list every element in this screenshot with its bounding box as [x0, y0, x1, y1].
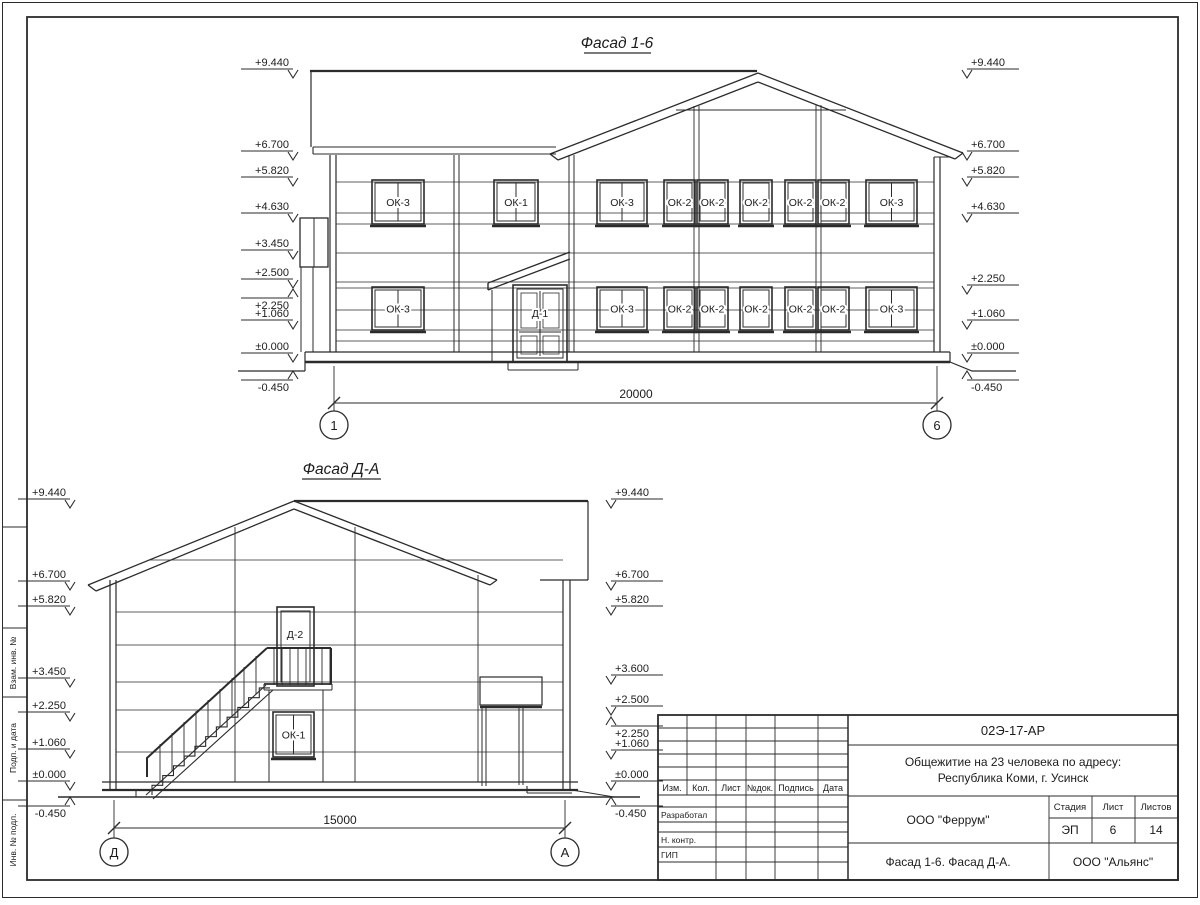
- window-label: ОК-2: [789, 197, 813, 209]
- window-label: ОК-1: [504, 197, 528, 209]
- col-list: Лист: [721, 783, 741, 793]
- window-label: ОК-2: [701, 304, 725, 316]
- stair-steps: [152, 688, 270, 795]
- elevation-value: ±0.000: [32, 769, 66, 781]
- axis-label: 6: [933, 418, 940, 433]
- window-label: ОК-2: [668, 304, 692, 316]
- elevation-value: -0.450: [258, 382, 289, 394]
- elevation-value: +3.450: [32, 666, 66, 678]
- window: ОК-2: [695, 180, 730, 226]
- elevation-value: +2.250: [32, 700, 66, 712]
- frame-side-label: Подп. и дата: [8, 723, 18, 773]
- dimension-text: 15000: [323, 813, 357, 827]
- row-razrabotal: Разработал: [661, 810, 707, 820]
- elevation-value: +4.630: [255, 201, 289, 213]
- elevation-value: +9.440: [971, 57, 1005, 69]
- stair-steps-layer: [152, 648, 330, 795]
- elevation-mark: ±0.000: [606, 769, 663, 790]
- elevation-value: +5.820: [32, 594, 66, 606]
- axis-label: А: [561, 845, 570, 860]
- sheet-value: 6: [1110, 823, 1117, 837]
- frame-side-label: Инв. № подл.: [8, 814, 18, 867]
- facade-d-a-title: Фасад Д-А: [303, 461, 380, 478]
- elevation-mark: +5.820: [241, 165, 298, 186]
- stage-value: ЭП: [1061, 823, 1078, 837]
- window-label: ОК-2: [744, 304, 768, 316]
- row-nkontr: Н. контр.: [661, 835, 696, 845]
- col-kol: Кол.: [692, 783, 710, 793]
- facade-1-6: Фасад 1-6: [238, 35, 1016, 439]
- elevation-value: +2.250: [971, 273, 1005, 285]
- door-d2-label: Д-2: [287, 629, 304, 641]
- window-label: ОК-3: [386, 304, 410, 316]
- window-label: ОК-2: [701, 197, 725, 209]
- window: ОК-3: [370, 287, 426, 332]
- window-label: ОК-3: [386, 197, 410, 209]
- elevation-mark: +6.700: [241, 139, 298, 160]
- elevation-value: +6.700: [255, 139, 289, 151]
- window: ОК-2: [816, 180, 851, 226]
- window: ОК-2: [695, 287, 730, 332]
- dimension-d-a: 15000 Д А: [100, 800, 579, 866]
- elevation-value: -0.450: [971, 382, 1002, 394]
- elevation-value: +5.820: [255, 165, 289, 177]
- porch-canopy: [480, 677, 572, 793]
- elevation-value: +4.630: [971, 201, 1005, 213]
- designer-org: ООО "Феррум": [907, 813, 990, 827]
- elevation-mark: ±0.000: [241, 341, 298, 362]
- axis-label: 1: [330, 418, 337, 433]
- elevation-mark: +3.450: [241, 238, 298, 259]
- window-label: ОК-2: [822, 304, 846, 316]
- project-name-line2: Республика Коми, г. Усинск: [938, 771, 1089, 785]
- door-d1-label: Д-1: [532, 308, 549, 320]
- facade-d-a: Фасад Д-А Д-2: [58, 461, 640, 866]
- window: ОК-1: [492, 180, 540, 226]
- axis-label: Д: [110, 845, 119, 860]
- elevation-value: -0.450: [35, 808, 66, 820]
- window: ОК-2: [816, 287, 851, 332]
- elevation-mark: ±0.000: [962, 341, 1019, 362]
- elevation-value: +1.060: [32, 737, 66, 749]
- col-podpis: Подпись: [778, 783, 814, 793]
- window-label: ОК-3: [610, 197, 634, 209]
- row-gip: ГИП: [661, 850, 678, 860]
- sheet-label: Лист: [1103, 802, 1124, 813]
- elevation-mark: +4.630: [962, 201, 1019, 222]
- elevation-value: +9.440: [32, 487, 66, 499]
- door-d2: Д-2: [277, 607, 314, 686]
- window: ОК-2: [783, 287, 818, 332]
- elevation-mark: -0.450: [241, 371, 298, 394]
- sheet-title: Фасад 1-6. Фасад Д-А.: [885, 855, 1010, 869]
- col-data: Дата: [823, 783, 843, 793]
- elevation-value: +9.440: [615, 487, 649, 499]
- sheets-value: 14: [1149, 823, 1163, 837]
- elevation-value: +5.820: [971, 165, 1005, 177]
- elevation-value: +9.440: [255, 57, 289, 69]
- elevation-mark: +9.440: [241, 57, 298, 78]
- window-label: ОК-3: [880, 197, 904, 209]
- elevation-value: +2.500: [615, 694, 649, 706]
- entrance-canopy: [488, 252, 570, 362]
- facade-1-6-title: Фасад 1-6: [581, 35, 654, 52]
- elevation-value: +3.600: [615, 663, 649, 675]
- elevation-mark: +6.700: [962, 139, 1019, 160]
- window-label: ОК-1: [282, 730, 306, 742]
- external-stair: [136, 648, 273, 799]
- door-d1: Д-1: [508, 285, 578, 370]
- window: ОК-2: [662, 287, 697, 332]
- drawing-sheet: Взам. инв. № Подп. и дата Инв. № подл. Ф…: [0, 0, 1200, 900]
- elevation-value: +2.500: [255, 267, 289, 279]
- window: ОК-2: [738, 287, 774, 332]
- window-label: ОК-2: [822, 197, 846, 209]
- elevation-mark: +3.600: [606, 663, 663, 684]
- window: ОК-3: [370, 180, 426, 226]
- elevation-mark: -0.450: [962, 371, 1019, 394]
- project-name-line1: Общежитие на 23 человека по адресу:: [905, 755, 1121, 769]
- window: ОК-3: [595, 180, 649, 226]
- elevation-value: +6.700: [32, 569, 66, 581]
- elevation-mark: +4.630: [241, 201, 298, 222]
- window: ОК-3: [595, 287, 649, 332]
- elevation-value: ±0.000: [255, 341, 289, 353]
- stage-label: Стадия: [1054, 802, 1086, 813]
- elevation-value: ±0.000: [615, 769, 649, 781]
- window: ОК-2: [662, 180, 697, 226]
- window: ОК-3: [864, 180, 919, 226]
- elevation-mark: +2.500: [606, 694, 663, 715]
- elevation-value: +1.060: [971, 308, 1005, 320]
- elevation-value: +1.060: [255, 308, 289, 320]
- elevation-value: +1.060: [615, 738, 649, 750]
- dimension-1-6: 20000 1 6: [320, 366, 951, 439]
- facade-drawing-svg: Взам. инв. № Подп. и дата Инв. № подл. Ф…: [0, 0, 1200, 900]
- elevation-value: +6.700: [615, 569, 649, 581]
- elevation-mark: +2.250: [962, 273, 1019, 294]
- window-label: ОК-2: [668, 197, 692, 209]
- elevation-mark: -0.450: [606, 797, 663, 820]
- elevation-value: +3.450: [255, 238, 289, 250]
- elevation-mark: +1.060: [606, 738, 663, 759]
- elevation-mark: +2.500: [241, 267, 298, 288]
- col-doc: №док.: [747, 783, 773, 793]
- dimension-text: 20000: [619, 387, 653, 401]
- elevation-mark: +6.700: [606, 569, 663, 590]
- window-label: ОК-3: [880, 304, 904, 316]
- elevation-value: -0.450: [615, 808, 646, 820]
- col-izm: Изм.: [662, 783, 681, 793]
- doc-number: 02Э-17-АР: [981, 723, 1045, 738]
- elevation-mark: +5.820: [606, 594, 663, 615]
- window-label: ОК-2: [744, 197, 768, 209]
- contractor-org: ООО "Альянс": [1073, 855, 1153, 869]
- elevation-value: +5.820: [615, 594, 649, 606]
- elevation-mark: +9.440: [606, 487, 663, 508]
- window-label: ОК-3: [610, 304, 634, 316]
- elevation-mark: +5.820: [962, 165, 1019, 186]
- window-label: ОК-2: [789, 304, 813, 316]
- elevation-value: +6.700: [971, 139, 1005, 151]
- elevation-value: ±0.000: [971, 341, 1005, 353]
- elevation-mark: +1.060: [241, 308, 298, 329]
- sheets-label: Листов: [1141, 802, 1172, 813]
- elevation-mark: +1.060: [962, 308, 1019, 329]
- elevation-mark: +9.440: [962, 57, 1019, 78]
- window: ОК-2: [738, 180, 774, 226]
- title-block: 02Э-17-АР Общежитие на 23 человека по ад…: [658, 715, 1178, 880]
- window: ОК-3: [864, 287, 919, 332]
- window: ОК-2: [783, 180, 818, 226]
- frame-side-label: Взам. инв. №: [8, 637, 18, 690]
- elevation-mark: +2.250: [606, 717, 663, 740]
